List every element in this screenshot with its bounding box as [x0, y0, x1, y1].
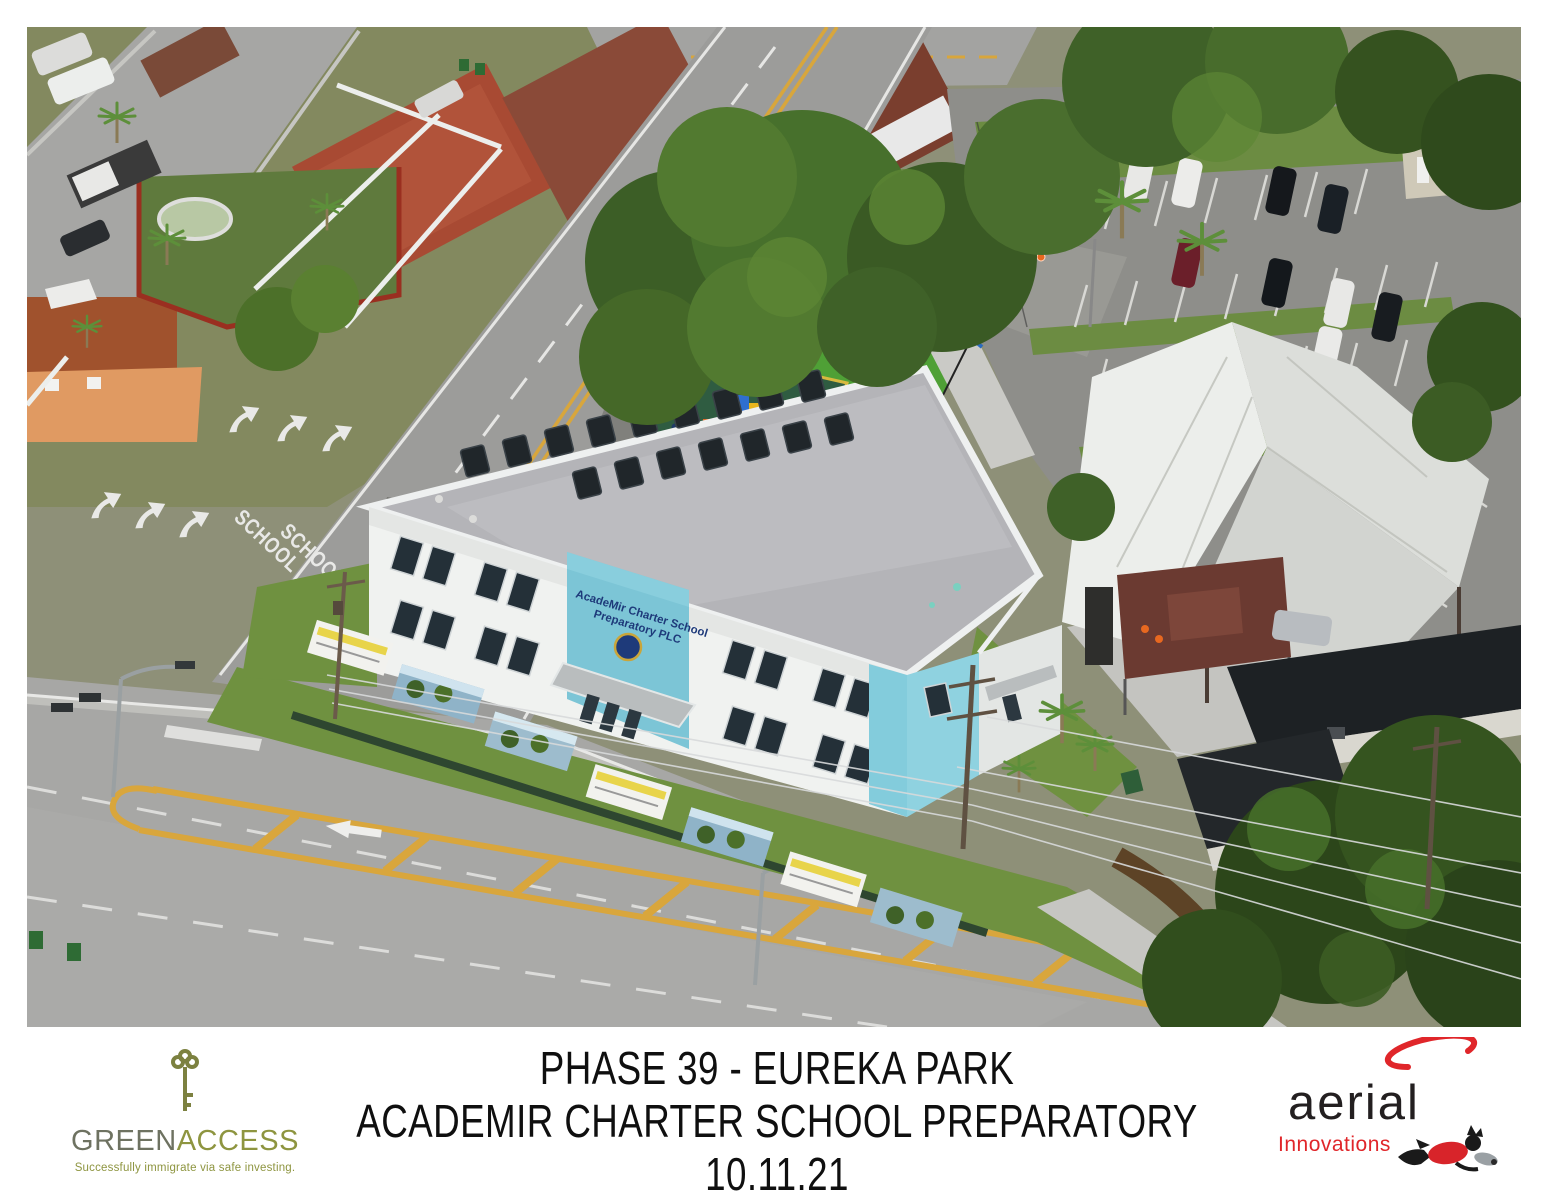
orange-house	[27, 367, 202, 442]
tile-roof-house	[27, 297, 177, 372]
caption-line-1: PHASE 39 - EUREKA PARK	[356, 1045, 1197, 1091]
aerial-photo: SCHOOL SCHOOL	[27, 27, 1521, 1027]
caption-footer: GREENACCESS Successfully immigrate via s…	[0, 1027, 1553, 1200]
aerial-scene: SCHOOL SCHOOL	[27, 27, 1521, 1027]
above-ground-pool	[159, 199, 231, 239]
aerial-innovations-logo: aerial Innovations	[1270, 1037, 1510, 1187]
innovations-wordmark: Innovations	[1278, 1133, 1391, 1157]
greenaccess-tagline: Successfully immigrate via safe investin…	[55, 1162, 315, 1174]
open-bay-door	[1085, 587, 1113, 665]
aerial-wordmark: aerial	[1288, 1075, 1420, 1131]
printed-aerial-photo-page: SCHOOL SCHOOL	[0, 0, 1553, 1200]
brand-part-green: GREEN	[71, 1125, 177, 1157]
caption-line-3: 10.11.21	[356, 1151, 1197, 1197]
swoosh-icon	[1388, 1037, 1474, 1067]
key-icon	[170, 1049, 200, 1119]
round-bush	[1047, 473, 1115, 541]
blue-accent-wall	[869, 664, 907, 817]
greenaccess-wordmark: GREENACCESS	[55, 1125, 315, 1158]
greenaccess-logo: GREENACCESS Successfully immigrate via s…	[55, 1049, 315, 1174]
school-seal	[615, 634, 641, 660]
brand-part-access: ACCESS	[177, 1125, 299, 1157]
photo-caption: PHASE 39 - EUREKA PARK ACADEMIR CHARTER …	[356, 1045, 1197, 1200]
caption-line-2: ACADEMIR CHARTER SCHOOL PREPARATORY	[356, 1098, 1197, 1144]
flying-photographer-icon	[1398, 1125, 1499, 1169]
